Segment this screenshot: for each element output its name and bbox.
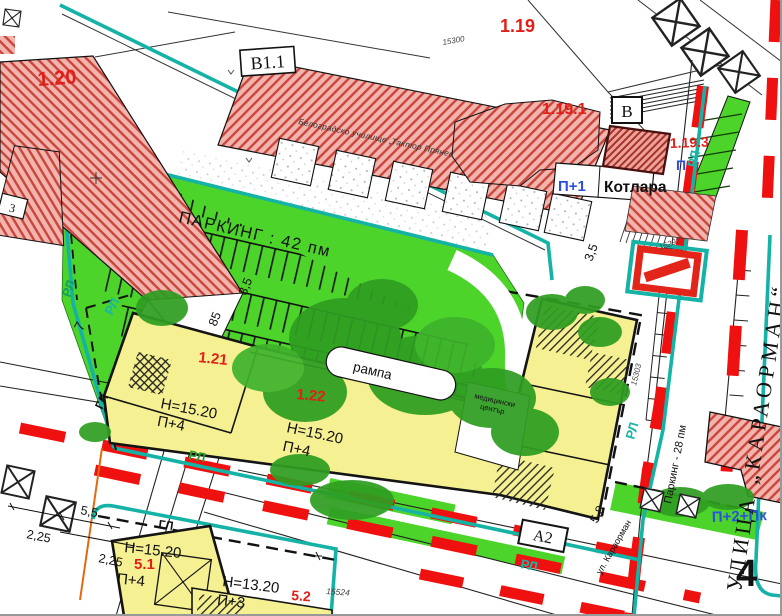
- building-label-b11: В1.1: [250, 51, 286, 73]
- crossed-box-symbol: [1, 465, 34, 498]
- parcel-label-1-19-1: 1.19.1: [542, 101, 587, 118]
- floors-label: П+3: [216, 592, 246, 612]
- block-number: 4: [736, 553, 757, 595]
- crossed-box-symbol: [3, 9, 21, 27]
- entrance-sign: [627, 242, 707, 301]
- crossed-box-symbol: [640, 488, 664, 512]
- elevation-label: 15524: [326, 586, 351, 598]
- floors-label: П+4: [116, 570, 146, 590]
- building-label-b: В: [621, 102, 632, 121]
- rl-label: РЛ: [519, 556, 539, 574]
- boiler-house-label: Котлара: [604, 179, 667, 196]
- parcel-label-1-22: 1.22: [296, 386, 327, 405]
- crossed-box-symbol: [676, 494, 700, 518]
- crossed-box-symbol: [40, 496, 76, 532]
- building-1-19-3: [603, 126, 670, 174]
- parcel-label-1-19: 1.19: [500, 16, 535, 36]
- parcel-label-5-2: 5.2: [291, 587, 312, 604]
- map-canvas: 3 Белоградско училище „Тактор Прянев“ В1…: [0, 0, 782, 616]
- rl-label: РЛ: [187, 447, 207, 465]
- parcel-label-1-20: 1.20: [37, 66, 77, 91]
- gl-label: ГЛ: [158, 517, 175, 533]
- parcel-label-1-19-3: 1.19.3: [670, 134, 710, 151]
- parcel-label-1-21: 1.21: [198, 349, 229, 369]
- map-page: 3 Белоградско училище „Тактор Прянев“ В1…: [0, 0, 782, 616]
- floors-label-p1: П+1: [558, 178, 586, 195]
- building-fragment: [0, 36, 15, 54]
